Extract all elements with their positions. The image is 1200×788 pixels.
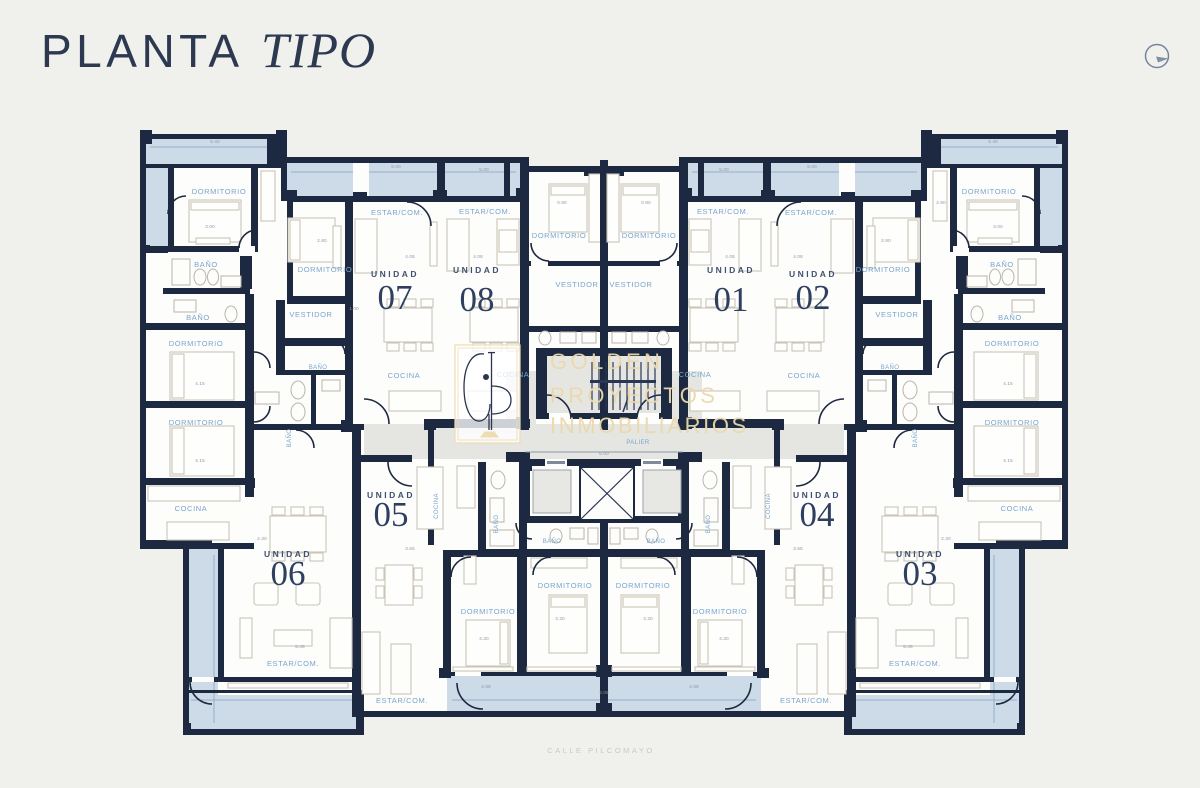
- svg-text:4.08: 4.08: [689, 684, 699, 689]
- svg-text:DORMITORIO: DORMITORIO: [192, 187, 247, 196]
- svg-text:4.08: 4.08: [725, 254, 735, 259]
- svg-text:COCINA: COCINA: [766, 493, 772, 519]
- svg-text:07: 07: [378, 278, 413, 317]
- svg-text:6.00: 6.00: [599, 451, 609, 456]
- svg-text:05: 05: [374, 495, 409, 534]
- svg-text:BAÑO: BAÑO: [493, 515, 500, 534]
- svg-text:02: 02: [796, 278, 831, 317]
- svg-text:3.30: 3.30: [555, 616, 565, 621]
- svg-text:ESTAR/COM.: ESTAR/COM.: [267, 659, 319, 668]
- svg-text:INMOBILIARIOS: INMOBILIARIOS: [550, 413, 749, 438]
- svg-text:BAÑO: BAÑO: [705, 515, 712, 534]
- svg-text:BAÑO: BAÑO: [543, 538, 562, 545]
- svg-text:DORMITORIO: DORMITORIO: [169, 418, 224, 427]
- svg-text:CALLE PILCOMAYO: CALLE PILCOMAYO: [547, 746, 654, 755]
- svg-text:ESTAR/COM.: ESTAR/COM.: [459, 207, 511, 216]
- svg-text:ESTAR/COM.: ESTAR/COM.: [780, 696, 832, 705]
- svg-text:COCINA: COCINA: [788, 371, 821, 380]
- svg-text:ESTAR/COM.: ESTAR/COM.: [371, 208, 423, 217]
- svg-text:UNIDAD: UNIDAD: [453, 265, 501, 275]
- svg-text:COCINA: COCINA: [1001, 504, 1034, 513]
- svg-text:VESTIDOR: VESTIDOR: [609, 280, 652, 289]
- svg-text:5.45: 5.45: [295, 644, 305, 649]
- svg-text:COCINA: COCINA: [388, 371, 421, 380]
- svg-text:0.80: 0.80: [557, 200, 567, 205]
- svg-text:5.00: 5.00: [391, 164, 401, 169]
- svg-text:ESTAR/COM.: ESTAR/COM.: [785, 208, 837, 217]
- svg-text:06: 06: [271, 554, 306, 593]
- svg-text:DORMITORIO: DORMITORIO: [985, 418, 1040, 427]
- svg-text:08: 08: [460, 280, 495, 319]
- svg-text:BAÑO: BAÑO: [194, 260, 218, 269]
- svg-text:04: 04: [800, 495, 835, 534]
- svg-text:GOLDEN: GOLDEN: [550, 349, 663, 374]
- svg-text:BAÑO: BAÑO: [990, 260, 1014, 269]
- svg-text:COCINA: COCINA: [175, 504, 208, 513]
- svg-text:3.30: 3.30: [643, 616, 653, 621]
- svg-text:3.08: 3.08: [599, 690, 609, 695]
- svg-text:UNIDAD: UNIDAD: [707, 265, 755, 275]
- svg-text:BAÑO: BAÑO: [912, 429, 919, 448]
- svg-text:4.15: 4.15: [1003, 458, 1013, 463]
- svg-text:3.30: 3.30: [479, 636, 489, 641]
- svg-text:DORMITORIO: DORMITORIO: [461, 607, 516, 616]
- svg-text:DORMITORIO: DORMITORIO: [616, 581, 671, 590]
- svg-text:0.80: 0.80: [641, 200, 651, 205]
- svg-text:VESTIDOR: VESTIDOR: [875, 310, 918, 319]
- svg-text:DORMITORIO: DORMITORIO: [856, 265, 911, 274]
- svg-text:01: 01: [714, 280, 749, 319]
- svg-text:ESTAR/COM.: ESTAR/COM.: [889, 659, 941, 668]
- svg-text:VESTIDOR: VESTIDOR: [289, 310, 332, 319]
- svg-text:BAÑO: BAÑO: [881, 364, 900, 371]
- svg-text:4.08: 4.08: [793, 254, 803, 259]
- svg-text:DORMITORIO: DORMITORIO: [985, 339, 1040, 348]
- svg-text:5.40: 5.40: [210, 139, 220, 144]
- svg-text:DORMITORIO: DORMITORIO: [538, 581, 593, 590]
- svg-text:2.30: 2.30: [941, 536, 951, 541]
- svg-text:TIPO: TIPO: [261, 22, 376, 78]
- svg-text:4.15: 4.15: [1003, 381, 1013, 386]
- svg-text:2.80: 2.80: [936, 200, 946, 205]
- svg-text:3.00: 3.00: [993, 224, 1003, 229]
- svg-text:ESTAR/COM.: ESTAR/COM.: [376, 696, 428, 705]
- svg-text:DORMITORIO: DORMITORIO: [962, 187, 1017, 196]
- svg-text:03: 03: [903, 554, 938, 593]
- svg-text:5.40: 5.40: [988, 139, 998, 144]
- svg-text:5.00: 5.00: [479, 167, 489, 172]
- svg-text:4.08: 4.08: [473, 254, 483, 259]
- svg-text:COCINA: COCINA: [679, 370, 712, 379]
- svg-text:DORMITORIO: DORMITORIO: [693, 607, 748, 616]
- svg-text:DORMITORIO: DORMITORIO: [169, 339, 224, 348]
- svg-text:4.15: 4.15: [195, 381, 205, 386]
- svg-text:5.00: 5.00: [807, 164, 817, 169]
- svg-text:BAÑO: BAÑO: [647, 538, 666, 545]
- svg-text:3.65: 3.65: [793, 546, 803, 551]
- svg-text:4.15: 4.15: [195, 458, 205, 463]
- svg-text:3.30: 3.30: [719, 636, 729, 641]
- svg-text:4.08: 4.08: [405, 254, 415, 259]
- svg-text:BAÑO: BAÑO: [998, 313, 1022, 322]
- svg-text:3.00: 3.00: [205, 224, 215, 229]
- svg-text:4.08: 4.08: [481, 684, 491, 689]
- svg-text:3.65: 3.65: [405, 546, 415, 551]
- svg-text:BAÑO: BAÑO: [186, 313, 210, 322]
- svg-text:COCINA: COCINA: [434, 493, 440, 519]
- svg-text:DORMITORIO: DORMITORIO: [298, 265, 353, 274]
- svg-text:2.30: 2.30: [257, 536, 267, 541]
- svg-text:PLANTA: PLANTA: [41, 25, 244, 77]
- svg-text:BAÑO: BAÑO: [309, 364, 328, 371]
- svg-text:ESTAR/COM.: ESTAR/COM.: [697, 207, 749, 216]
- svg-text:PROYECTOS: PROYECTOS: [550, 383, 718, 408]
- svg-text:DORMITORIO: DORMITORIO: [532, 231, 587, 240]
- svg-text:1.00: 1.00: [349, 306, 359, 311]
- svg-text:2.80: 2.80: [881, 238, 891, 243]
- svg-text:VESTIDOR: VESTIDOR: [555, 280, 598, 289]
- svg-text:DORMITORIO: DORMITORIO: [622, 231, 677, 240]
- svg-text:2.80: 2.80: [317, 238, 327, 243]
- svg-text:PALIER: PALIER: [626, 440, 650, 446]
- svg-text:5.45: 5.45: [903, 644, 913, 649]
- svg-text:5.00: 5.00: [719, 167, 729, 172]
- svg-text:BAÑO: BAÑO: [286, 429, 293, 448]
